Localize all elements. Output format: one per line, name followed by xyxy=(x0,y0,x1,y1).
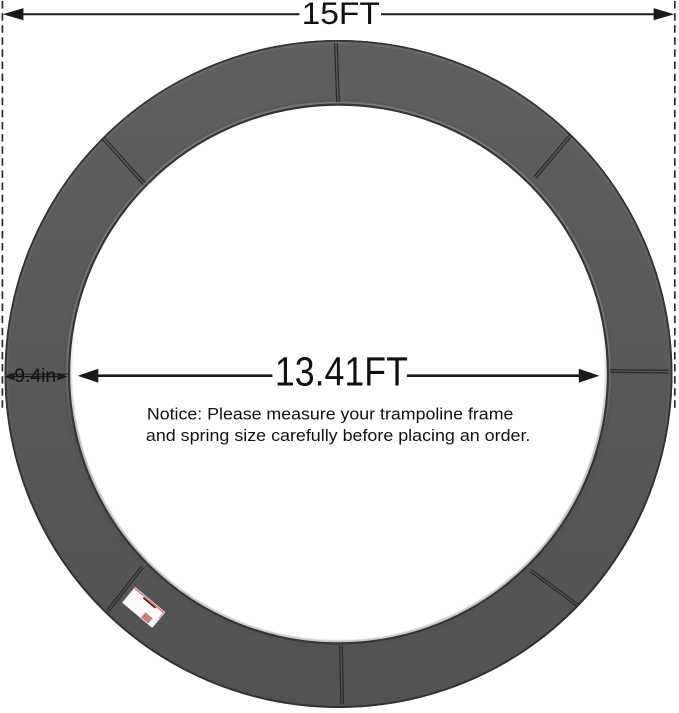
svg-text:9.4in: 9.4in xyxy=(14,365,56,387)
svg-text:13.41FT: 13.41FT xyxy=(275,349,408,395)
svg-text:15FT: 15FT xyxy=(302,0,380,31)
svg-text:and spring size carefully befo: and spring size carefully before placing… xyxy=(146,427,531,445)
svg-text:Notice: Please measure your tr: Notice: Please measure your trampoline f… xyxy=(147,406,514,424)
